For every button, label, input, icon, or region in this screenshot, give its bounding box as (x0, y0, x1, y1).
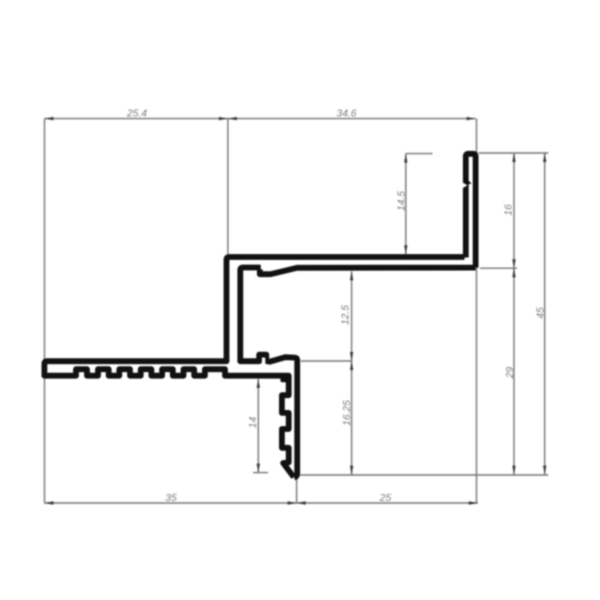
svg-text:35: 35 (165, 493, 177, 504)
svg-text:16.25: 16.25 (342, 400, 353, 426)
svg-text:14.5: 14.5 (396, 191, 407, 211)
svg-text:25.4: 25.4 (126, 109, 147, 120)
svg-text:16: 16 (504, 204, 515, 216)
svg-text:14: 14 (248, 417, 259, 429)
svg-text:12.5: 12.5 (341, 305, 352, 325)
svg-text:45: 45 (535, 307, 546, 319)
svg-text:25: 25 (379, 493, 392, 504)
svg-text:29: 29 (505, 367, 516, 380)
svg-text:34.6: 34.6 (336, 108, 356, 119)
